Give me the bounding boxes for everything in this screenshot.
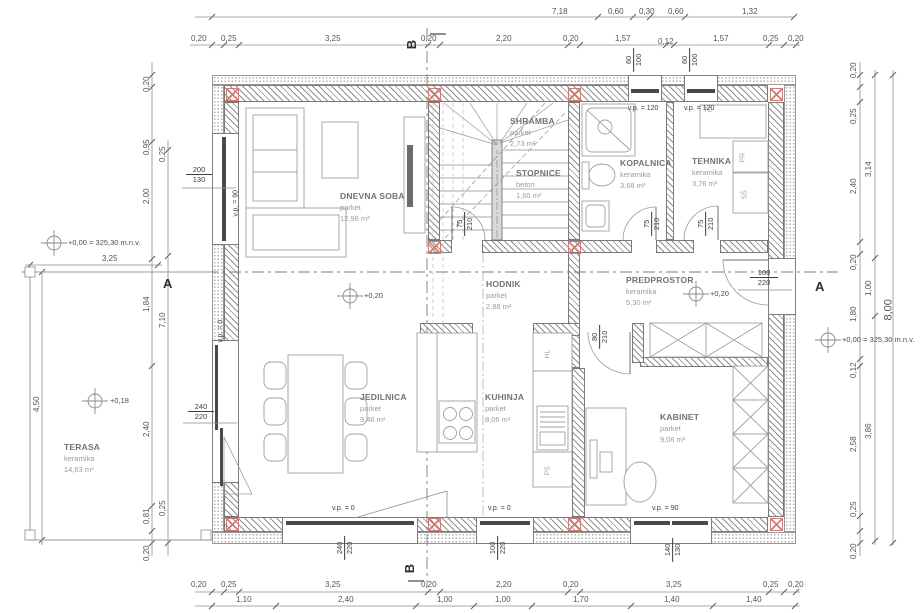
dim-label: 2,58 bbox=[850, 428, 858, 452]
dim-label: 1,40 bbox=[746, 596, 762, 604]
room-label-kuhinja: KUHINJA parket 8,06 m² bbox=[485, 392, 524, 424]
dim-label: 2,40 bbox=[338, 596, 354, 604]
opening-width: 100 bbox=[488, 536, 498, 560]
room-material: keramika bbox=[620, 170, 672, 179]
section-marker-b-top: B bbox=[405, 40, 418, 49]
room-label-hodnik: HODNIK parket 2,88 m² bbox=[486, 279, 521, 311]
dim-label: 0,20 bbox=[191, 581, 207, 589]
room-name: DNEVNA SOBA bbox=[340, 191, 405, 201]
opening-height: 210 bbox=[601, 325, 610, 349]
section-marker-b-bottom: B bbox=[403, 564, 416, 573]
chair bbox=[264, 362, 286, 389]
dim-label: 0,20 bbox=[788, 35, 804, 43]
room-area: 14,63 m² bbox=[64, 465, 100, 474]
sill-label-dining-door: v.p. = 0 bbox=[332, 505, 355, 512]
opening-width: 60 bbox=[680, 48, 690, 72]
room-name: HODNIK bbox=[486, 279, 521, 289]
dim-label: 0,95 bbox=[143, 131, 151, 155]
dim-label: 3,25 bbox=[325, 35, 341, 43]
room-material: beton bbox=[516, 180, 561, 189]
opening-size-dining-door: 240 220 bbox=[335, 536, 355, 560]
terrace-post bbox=[25, 530, 35, 540]
room-name: STOPNICE bbox=[516, 168, 561, 178]
dim-label: 0,20 bbox=[143, 68, 151, 92]
opening-height: 100 bbox=[635, 48, 644, 72]
kitchen-island bbox=[417, 333, 477, 452]
room-area: 3,68 m² bbox=[620, 181, 672, 190]
opening-height: 100 bbox=[691, 48, 700, 72]
room-material: parket bbox=[360, 404, 407, 413]
dim-label: 3,25 bbox=[102, 255, 118, 263]
room-material: parket bbox=[340, 203, 405, 212]
opening-size-cabinet-window: 140 130 bbox=[663, 538, 683, 562]
room-material: parket bbox=[660, 424, 699, 433]
keyboard bbox=[600, 452, 612, 472]
opening-height: 130 bbox=[186, 175, 212, 184]
room-name: TERASA bbox=[64, 442, 100, 452]
dim-label: 0,25 bbox=[159, 492, 167, 516]
dim-label: 0,25 bbox=[221, 581, 237, 589]
dim-label: 0,25 bbox=[763, 581, 779, 589]
opening-height: 220 bbox=[499, 536, 508, 560]
room-name: KUHINJA bbox=[485, 392, 524, 402]
dim-label: 0,25 bbox=[850, 493, 858, 517]
room-name: KOPALNICA bbox=[620, 158, 672, 168]
opening-width: 60 bbox=[624, 48, 634, 72]
dim-label: 3,14 bbox=[865, 153, 873, 177]
terrace-post bbox=[25, 267, 35, 277]
datum-label-right: +0,00 = 325,30 m.n.v. bbox=[842, 336, 914, 344]
room-material: parket bbox=[486, 291, 521, 300]
dim-label: 2,00 bbox=[143, 180, 151, 204]
dim-label: 7,10 bbox=[159, 304, 167, 328]
toilet bbox=[589, 164, 615, 186]
room-area: 1,60 m² bbox=[516, 191, 561, 200]
dim-label: 0,20 bbox=[850, 54, 858, 78]
opening-size-stairs-door: 75 210 bbox=[455, 212, 475, 236]
room-material: keramika bbox=[64, 454, 100, 463]
chair bbox=[264, 434, 286, 461]
dim-label: 0,25 bbox=[159, 138, 167, 162]
room-label-shramba: SHRAMBA parket 2,73 m² bbox=[510, 116, 555, 148]
dim-label: 0,20 bbox=[850, 535, 858, 559]
opening-height: 210 bbox=[653, 212, 662, 236]
dim-label: 0,25 bbox=[850, 100, 858, 124]
dim-label: 0,20 bbox=[788, 581, 804, 589]
room-material: parket bbox=[485, 404, 524, 413]
room-material: keramika bbox=[692, 168, 731, 177]
dim-label: 1,00 bbox=[865, 272, 873, 296]
dim-label: 0,20 bbox=[850, 246, 858, 270]
opening-width: 75 bbox=[642, 212, 652, 236]
sofa bbox=[246, 108, 304, 208]
room-name: PREDPROSTOR bbox=[626, 275, 694, 285]
room-label-kopalnica: KOPALNICA keramika 3,68 m² bbox=[620, 158, 672, 190]
dim-label: 0,12 bbox=[658, 38, 674, 46]
sill-label-terrace-door: v.p. = 0 bbox=[218, 307, 225, 343]
opening-width: 200 bbox=[186, 165, 212, 175]
room-material: keramika bbox=[626, 287, 694, 296]
room-area: 3,76 m² bbox=[692, 179, 731, 188]
room-label-stopnice: STOPNICE beton 1,60 m² bbox=[516, 168, 561, 200]
opening-width: 75 bbox=[696, 212, 706, 236]
sill-label-living-window: v.p. = 90 bbox=[233, 173, 240, 217]
sill-label-kitchen-window: v.p. = 0 bbox=[488, 505, 511, 512]
opening-size-cabinet-door: 80 210 bbox=[590, 325, 610, 349]
opening-size-kitchen-window: 100 220 bbox=[488, 536, 508, 560]
dim-label: 1,00 bbox=[437, 596, 453, 604]
dim-label: 3,25 bbox=[666, 581, 682, 589]
dim-label: 1,57 bbox=[713, 35, 729, 43]
room-label-kabinet: KABINET parket 9,06 m² bbox=[660, 412, 699, 444]
opening-width: 240 bbox=[188, 402, 214, 412]
chair bbox=[345, 362, 367, 389]
dryer bbox=[733, 173, 768, 213]
dim-label: 2,20 bbox=[496, 581, 512, 589]
dim-label: 2,20 bbox=[496, 35, 512, 43]
room-label-jedilnica: JEDILNICA parket 9,46 m² bbox=[360, 392, 407, 424]
dim-label: 1,00 bbox=[495, 596, 511, 604]
opening-width: 75 bbox=[455, 212, 465, 236]
room-area: 9,46 m² bbox=[360, 415, 407, 424]
room-area: 12,96 m² bbox=[340, 214, 405, 223]
room-label-predprostor: PREDPROSTOR keramika 5,30 m² bbox=[626, 275, 694, 307]
opening-size-living-window: 200 130 bbox=[186, 165, 212, 185]
dim-label: 0,20 bbox=[421, 35, 437, 43]
monitor bbox=[590, 440, 597, 478]
sill-label-top-window-1: v.p. = 120 bbox=[628, 105, 658, 112]
dim-label: 1,57 bbox=[615, 35, 631, 43]
opening-size-terrace-door: 240 220 bbox=[188, 402, 214, 422]
appliance-tag-hl: HL bbox=[545, 345, 552, 359]
coffee-table bbox=[322, 122, 358, 178]
section-marker-a-right: A bbox=[815, 280, 824, 293]
chair bbox=[264, 398, 286, 425]
dim-label-total: 8,00 bbox=[884, 291, 895, 321]
dim-label: 1,40 bbox=[664, 596, 680, 604]
floor-plan: 7,18 0,60 0,30 0,60 1,32 0,20 0,25 3,25 … bbox=[0, 0, 920, 613]
tv bbox=[407, 145, 413, 207]
room-area: 2,88 m² bbox=[486, 302, 521, 311]
opening-height: 220 bbox=[188, 412, 214, 421]
appliance-tag-pr: PR. bbox=[740, 149, 747, 163]
room-name: SHRAMBA bbox=[510, 116, 555, 126]
office-chair bbox=[624, 462, 656, 502]
opening-height: 220 bbox=[750, 278, 778, 287]
room-material: parket bbox=[510, 128, 555, 137]
dim-label: 2,40 bbox=[850, 170, 858, 194]
level-label-predprostor: +0,20 bbox=[710, 290, 729, 298]
room-area: 2,73 m² bbox=[510, 139, 555, 148]
opening-width: 80 bbox=[590, 325, 600, 349]
opening-size-entrance-door: 100 220 bbox=[750, 268, 778, 288]
dim-label: 0,25 bbox=[763, 35, 779, 43]
dim-label: 0,20 bbox=[191, 35, 207, 43]
room-name: KABINET bbox=[660, 412, 699, 422]
room-name: JEDILNICA bbox=[360, 392, 407, 402]
dim-label: 3,25 bbox=[325, 581, 341, 589]
dim-label: 0,81 bbox=[143, 500, 151, 524]
dining-table bbox=[288, 355, 343, 473]
opening-size-tech-door: 75 210 bbox=[696, 212, 716, 236]
opening-size-top-window-1: 60 100 bbox=[624, 48, 644, 72]
dim-label: 0,20 bbox=[143, 537, 151, 561]
room-label-dnevna-soba: DNEVNA SOBA parket 12,96 m² bbox=[340, 191, 405, 223]
fold-door-symbol bbox=[224, 437, 252, 494]
sill-label-cabinet-window: v.p. = 90 bbox=[652, 505, 679, 512]
dim-label: 1,70 bbox=[573, 596, 589, 604]
dim-label: 0,20 bbox=[563, 581, 579, 589]
section-marker-a-left: A bbox=[163, 277, 172, 290]
opening-width: 240 bbox=[335, 536, 345, 560]
opening-width: 100 bbox=[750, 268, 778, 278]
room-area: 5,30 m² bbox=[626, 298, 694, 307]
chair bbox=[345, 434, 367, 461]
dim-label: 1,10 bbox=[236, 596, 252, 604]
opening-size-top-window-2: 60 100 bbox=[680, 48, 700, 72]
dim-label: 7,18 bbox=[552, 8, 568, 16]
dim-label: 0,30 bbox=[639, 8, 655, 16]
dim-label: 0,60 bbox=[668, 8, 684, 16]
terrace-post bbox=[201, 530, 211, 540]
opening-width: 140 bbox=[663, 538, 673, 562]
toilet-tank bbox=[582, 162, 589, 189]
sill-label-top-window-2: v.p. = 120 bbox=[684, 105, 714, 112]
room-area: 9,06 m² bbox=[660, 435, 699, 444]
appliance-tag-ss: SŠ bbox=[742, 186, 749, 200]
plan-linework bbox=[0, 0, 920, 613]
dim-label: 1,32 bbox=[742, 8, 758, 16]
dim-label: 1,80 bbox=[850, 298, 858, 322]
room-area: 8,06 m² bbox=[485, 415, 524, 424]
tilt-window-symbol bbox=[358, 491, 447, 517]
appliance-tag-ps: PS bbox=[545, 462, 552, 476]
opening-height: 220 bbox=[346, 536, 355, 560]
dim-label: 2,40 bbox=[143, 413, 151, 437]
room-name: TEHNIKA bbox=[692, 156, 731, 166]
dim-label: 0,25 bbox=[221, 35, 237, 43]
opening-size-bath-door: 75 210 bbox=[642, 212, 662, 236]
dim-label: 0,20 bbox=[563, 35, 579, 43]
dim-label: 1,84 bbox=[143, 288, 151, 312]
opening-height: 210 bbox=[466, 212, 475, 236]
dim-label: 0,12 bbox=[850, 354, 858, 378]
level-label-terasa: +0,18 bbox=[110, 397, 129, 405]
dim-label: 4,50 bbox=[33, 388, 41, 412]
dim-label: 0,60 bbox=[608, 8, 624, 16]
opening-height: 130 bbox=[674, 538, 683, 562]
datum-label-left: +0,00 = 325,30 m.n.v. bbox=[68, 239, 140, 247]
washer bbox=[733, 141, 768, 172]
dim-label: 0,20 bbox=[421, 581, 437, 589]
room-label-terasa: TERASA keramika 14,63 m² bbox=[64, 442, 100, 474]
dim-label: 3,86 bbox=[865, 415, 873, 439]
kitchen-counter bbox=[533, 333, 572, 487]
level-label-hodnik: +0,20 bbox=[364, 292, 383, 300]
room-label-tehnika: TEHNIKA keramika 3,76 m² bbox=[692, 156, 731, 188]
opening-height: 210 bbox=[707, 212, 716, 236]
